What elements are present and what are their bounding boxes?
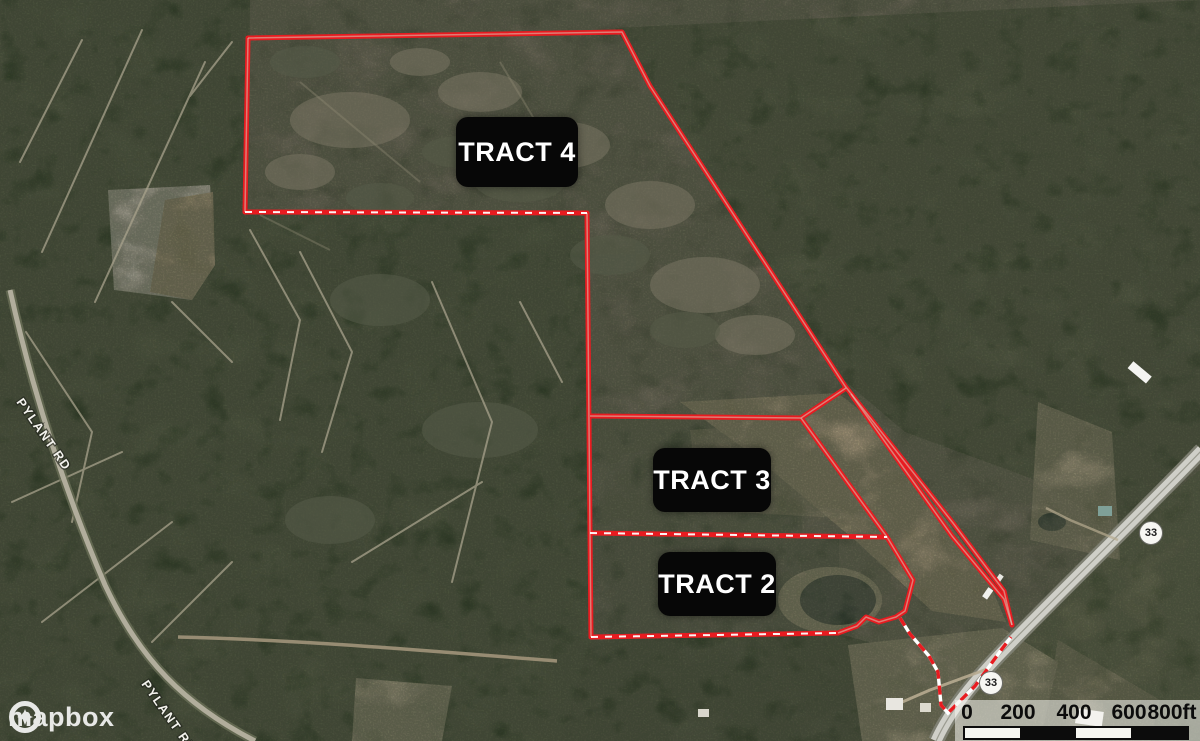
tract-2-label-text: TRACT 2 <box>658 569 776 600</box>
scale-bar-segments <box>963 726 1189 740</box>
scale-tick-400: 400 <box>1056 701 1091 725</box>
map-canvas[interactable]: PYLANT RD PYLANT RD TRACT 4 TRACT 3 TRAC… <box>0 0 1200 741</box>
tract-2-label: TRACT 2 <box>658 552 776 616</box>
tract-4-label-text: TRACT 4 <box>458 137 576 168</box>
mapbox-attribution[interactable]: mapbox <box>8 700 115 734</box>
tract-4-label: TRACT 4 <box>456 117 578 187</box>
route-33-shield-upper: 33 <box>1139 521 1163 545</box>
scale-bar: 0 200 400 600 800ft <box>955 700 1200 741</box>
tract-3-label-text: TRACT 3 <box>653 465 771 496</box>
mapbox-logo-icon <box>8 700 42 734</box>
route-33-shield-lower: 33 <box>979 671 1003 695</box>
scale-tick-200: 200 <box>1000 701 1035 725</box>
tract-3-label: TRACT 3 <box>653 448 771 512</box>
scale-tick-800ft: 800ft <box>1147 701 1196 725</box>
scale-tick-600: 600 <box>1111 701 1146 725</box>
satellite-map-image: PYLANT RD PYLANT RD <box>0 0 1200 741</box>
scale-tick-0: 0 <box>961 701 973 725</box>
